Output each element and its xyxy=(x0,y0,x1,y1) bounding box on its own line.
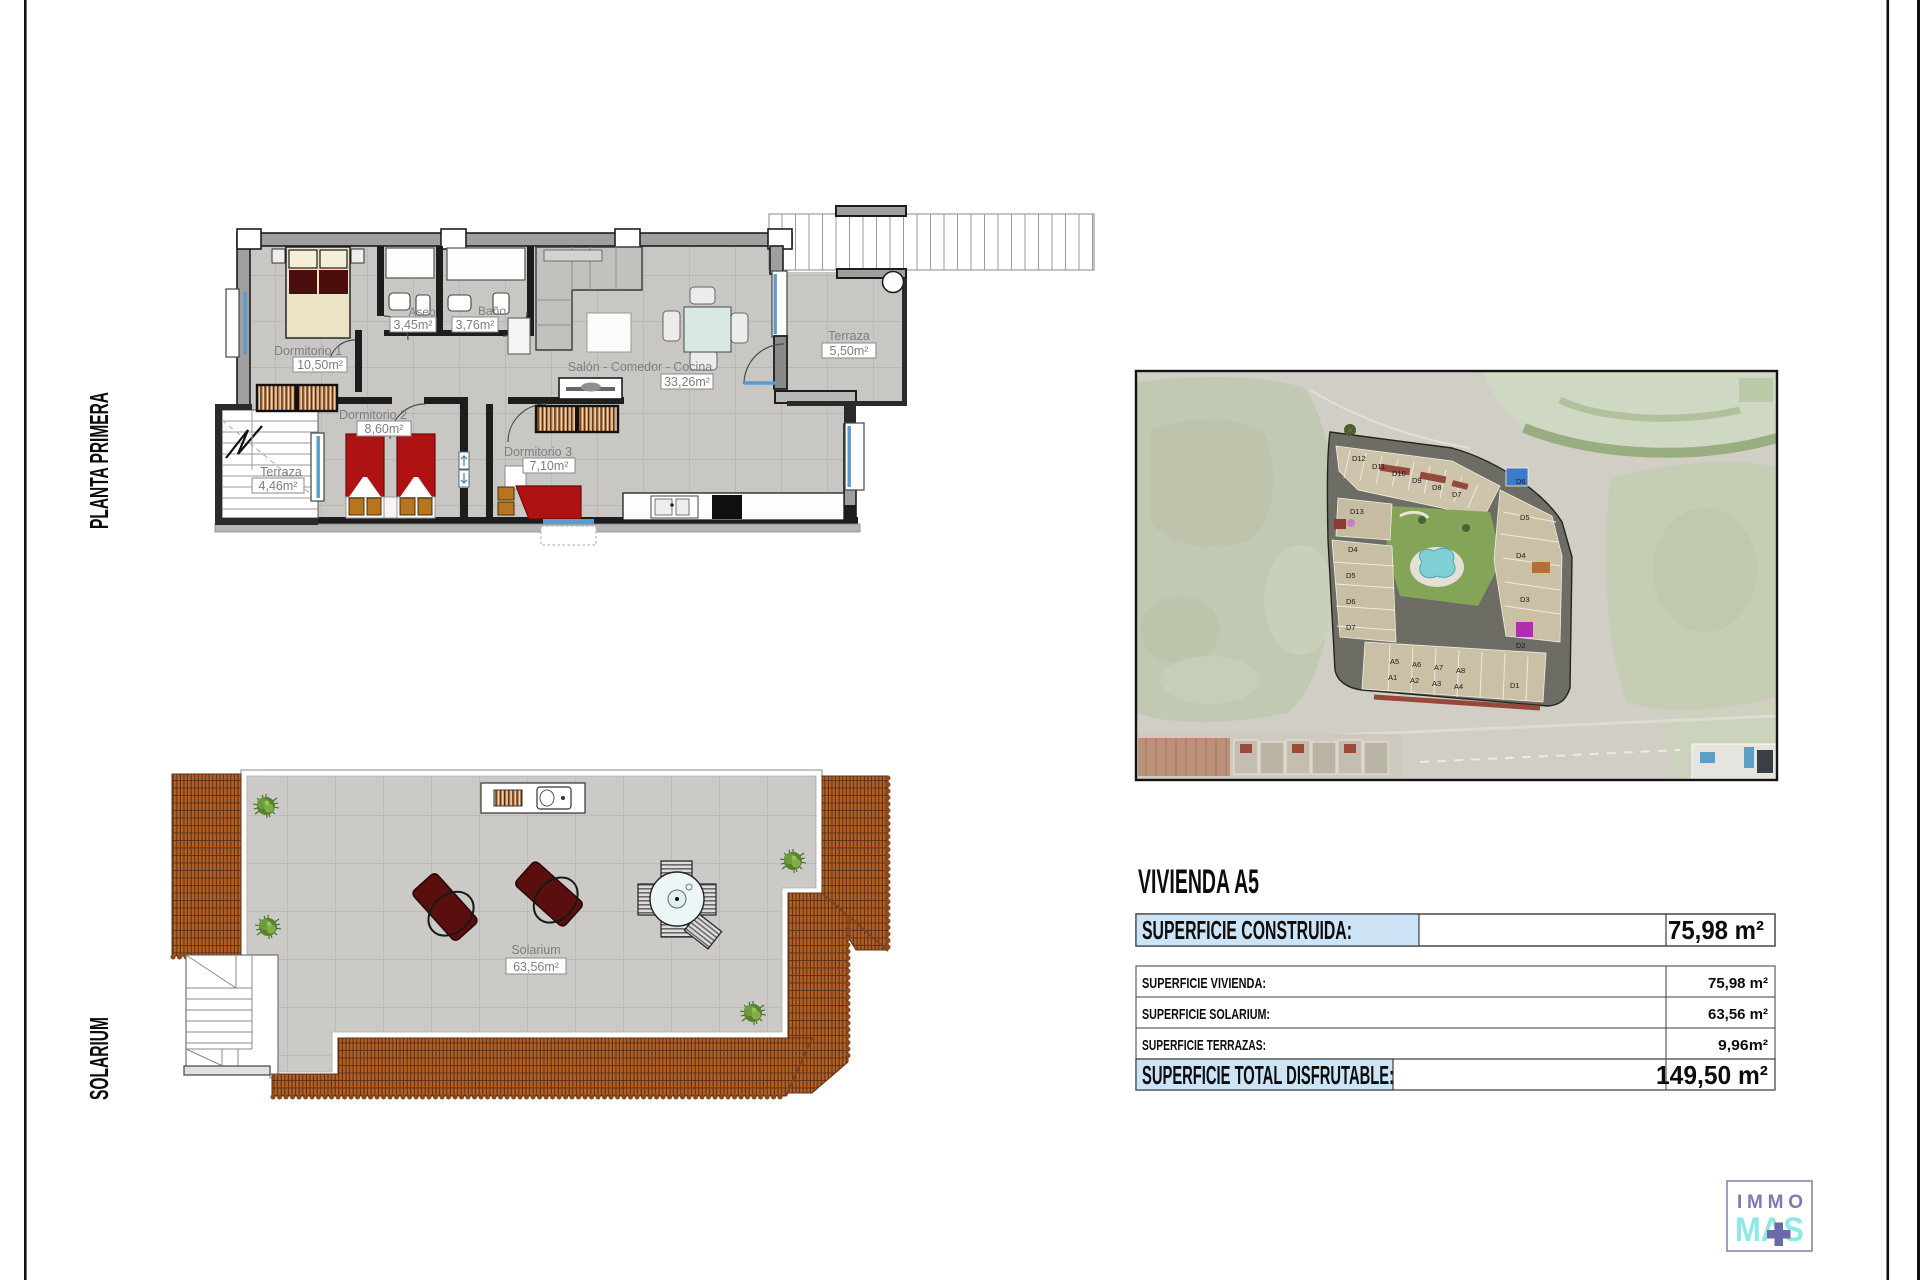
svg-text:SUPERFICIE SOLARIUM:: SUPERFICIE SOLARIUM: xyxy=(1142,1006,1270,1023)
svg-text:9,96m²: 9,96m² xyxy=(1718,1037,1768,1054)
svg-text:3,45m²: 3,45m² xyxy=(394,318,433,332)
svg-text:D6: D6 xyxy=(1516,477,1526,486)
svg-text:D1: D1 xyxy=(1510,681,1520,690)
svg-text:Dormitorio 3: Dormitorio 3 xyxy=(504,445,572,459)
svg-text:SOLARIUM: SOLARIUM xyxy=(84,1017,114,1100)
svg-text:Terraza: Terraza xyxy=(260,465,302,479)
svg-text:D6: D6 xyxy=(1346,597,1356,606)
svg-text:SUPERFICIE CONSTRUIDA:: SUPERFICIE CONSTRUIDA: xyxy=(1142,915,1352,945)
svg-text:D7: D7 xyxy=(1452,490,1462,499)
svg-text:A1: A1 xyxy=(1388,673,1397,682)
svg-text:SUPERFICIE TOTAL DISFRUTABLE:: SUPERFICIE TOTAL DISFRUTABLE: xyxy=(1142,1060,1394,1090)
svg-text:SUPERFICIE VIVIENDA:: SUPERFICIE VIVIENDA: xyxy=(1142,975,1266,992)
svg-text:D9: D9 xyxy=(1412,476,1422,485)
svg-text:A2: A2 xyxy=(1410,676,1419,685)
svg-text:63,56m²: 63,56m² xyxy=(513,960,559,974)
svg-text:D12: D12 xyxy=(1352,454,1366,463)
svg-text:Dormitorio 2: Dormitorio 2 xyxy=(339,408,407,422)
svg-text:A8: A8 xyxy=(1456,666,1465,675)
svg-text:5,50m²: 5,50m² xyxy=(830,344,869,358)
svg-text:Dormitorio 1: Dormitorio 1 xyxy=(274,344,342,358)
svg-text:3,76m²: 3,76m² xyxy=(456,318,495,332)
svg-text:A3: A3 xyxy=(1432,679,1441,688)
svg-text:A6: A6 xyxy=(1412,660,1421,669)
svg-text:8,60m²: 8,60m² xyxy=(365,422,404,436)
svg-text:D2: D2 xyxy=(1516,641,1526,650)
svg-text:D5: D5 xyxy=(1346,571,1356,580)
svg-text:33,26m²: 33,26m² xyxy=(664,375,710,389)
svg-text:VIVIENDA A5: VIVIENDA A5 xyxy=(1138,863,1259,901)
svg-text:D13: D13 xyxy=(1350,507,1364,516)
svg-text:75,98 m²: 75,98 m² xyxy=(1668,915,1764,945)
svg-text:Terraza: Terraza xyxy=(828,329,870,343)
svg-text:D4: D4 xyxy=(1348,545,1358,554)
svg-text:149,50 m²: 149,50 m² xyxy=(1656,1060,1768,1090)
svg-text:10,50m²: 10,50m² xyxy=(297,358,343,372)
svg-text:D3: D3 xyxy=(1520,595,1530,604)
svg-text:75,98 m²: 75,98 m² xyxy=(1708,975,1768,992)
svg-text:D4: D4 xyxy=(1516,551,1526,560)
svg-text:A7: A7 xyxy=(1434,663,1443,672)
svg-text:63,56 m²: 63,56 m² xyxy=(1708,1006,1768,1023)
svg-text:PLANTA PRIMERA: PLANTA PRIMERA xyxy=(84,392,114,529)
svg-text:D5: D5 xyxy=(1520,513,1530,522)
svg-text:IMMO: IMMO xyxy=(1737,1192,1803,1213)
svg-text:7,10m²: 7,10m² xyxy=(530,459,569,473)
svg-text:SUPERFICIE TERRAZAS:: SUPERFICIE TERRAZAS: xyxy=(1142,1037,1266,1054)
svg-text:A4: A4 xyxy=(1454,682,1463,691)
svg-text:Baño: Baño xyxy=(478,304,506,318)
svg-text:A5: A5 xyxy=(1390,657,1399,666)
svg-text:Salón - Comedor - Cocina: Salón - Comedor - Cocina xyxy=(568,360,713,374)
svg-text:D10: D10 xyxy=(1392,469,1406,478)
svg-text:D11: D11 xyxy=(1372,462,1385,471)
svg-text:4,46m²: 4,46m² xyxy=(259,479,298,493)
svg-text:D8: D8 xyxy=(1432,483,1442,492)
svg-text:D7: D7 xyxy=(1346,623,1356,632)
svg-text:Solarium: Solarium xyxy=(511,943,560,957)
